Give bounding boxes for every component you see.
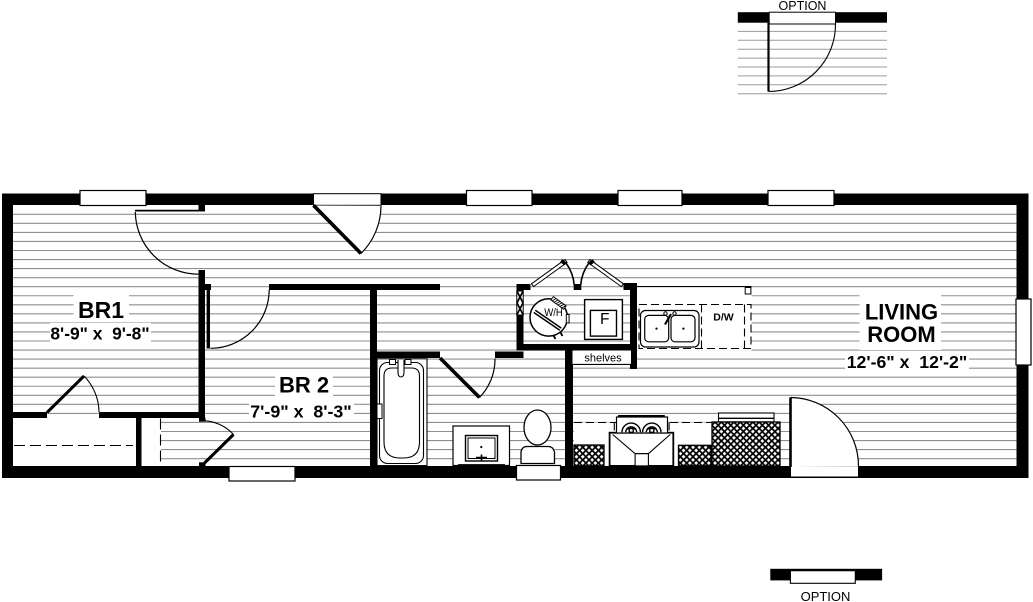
svg-text:LIVING: LIVING <box>865 300 938 325</box>
svg-text:OPTION: OPTION <box>801 589 851 602</box>
svg-text:shelves: shelves <box>584 353 622 365</box>
svg-text:BR1: BR1 <box>78 297 124 323</box>
svg-text:OPTION: OPTION <box>779 0 827 13</box>
svg-text:W/H: W/H <box>544 307 563 319</box>
svg-text:8'-9" x 9'-8": 8'-9" x 9'-8" <box>50 324 149 344</box>
svg-text:F: F <box>600 311 609 328</box>
svg-text:12'-6" x 12'-2": 12'-6" x 12'-2" <box>847 352 968 372</box>
svg-text:D/W: D/W <box>713 311 734 323</box>
svg-text:7'-9" x 8'-3": 7'-9" x 8'-3" <box>250 402 351 422</box>
svg-text:ROOM: ROOM <box>867 322 935 347</box>
svg-text:BR 2: BR 2 <box>279 373 329 398</box>
